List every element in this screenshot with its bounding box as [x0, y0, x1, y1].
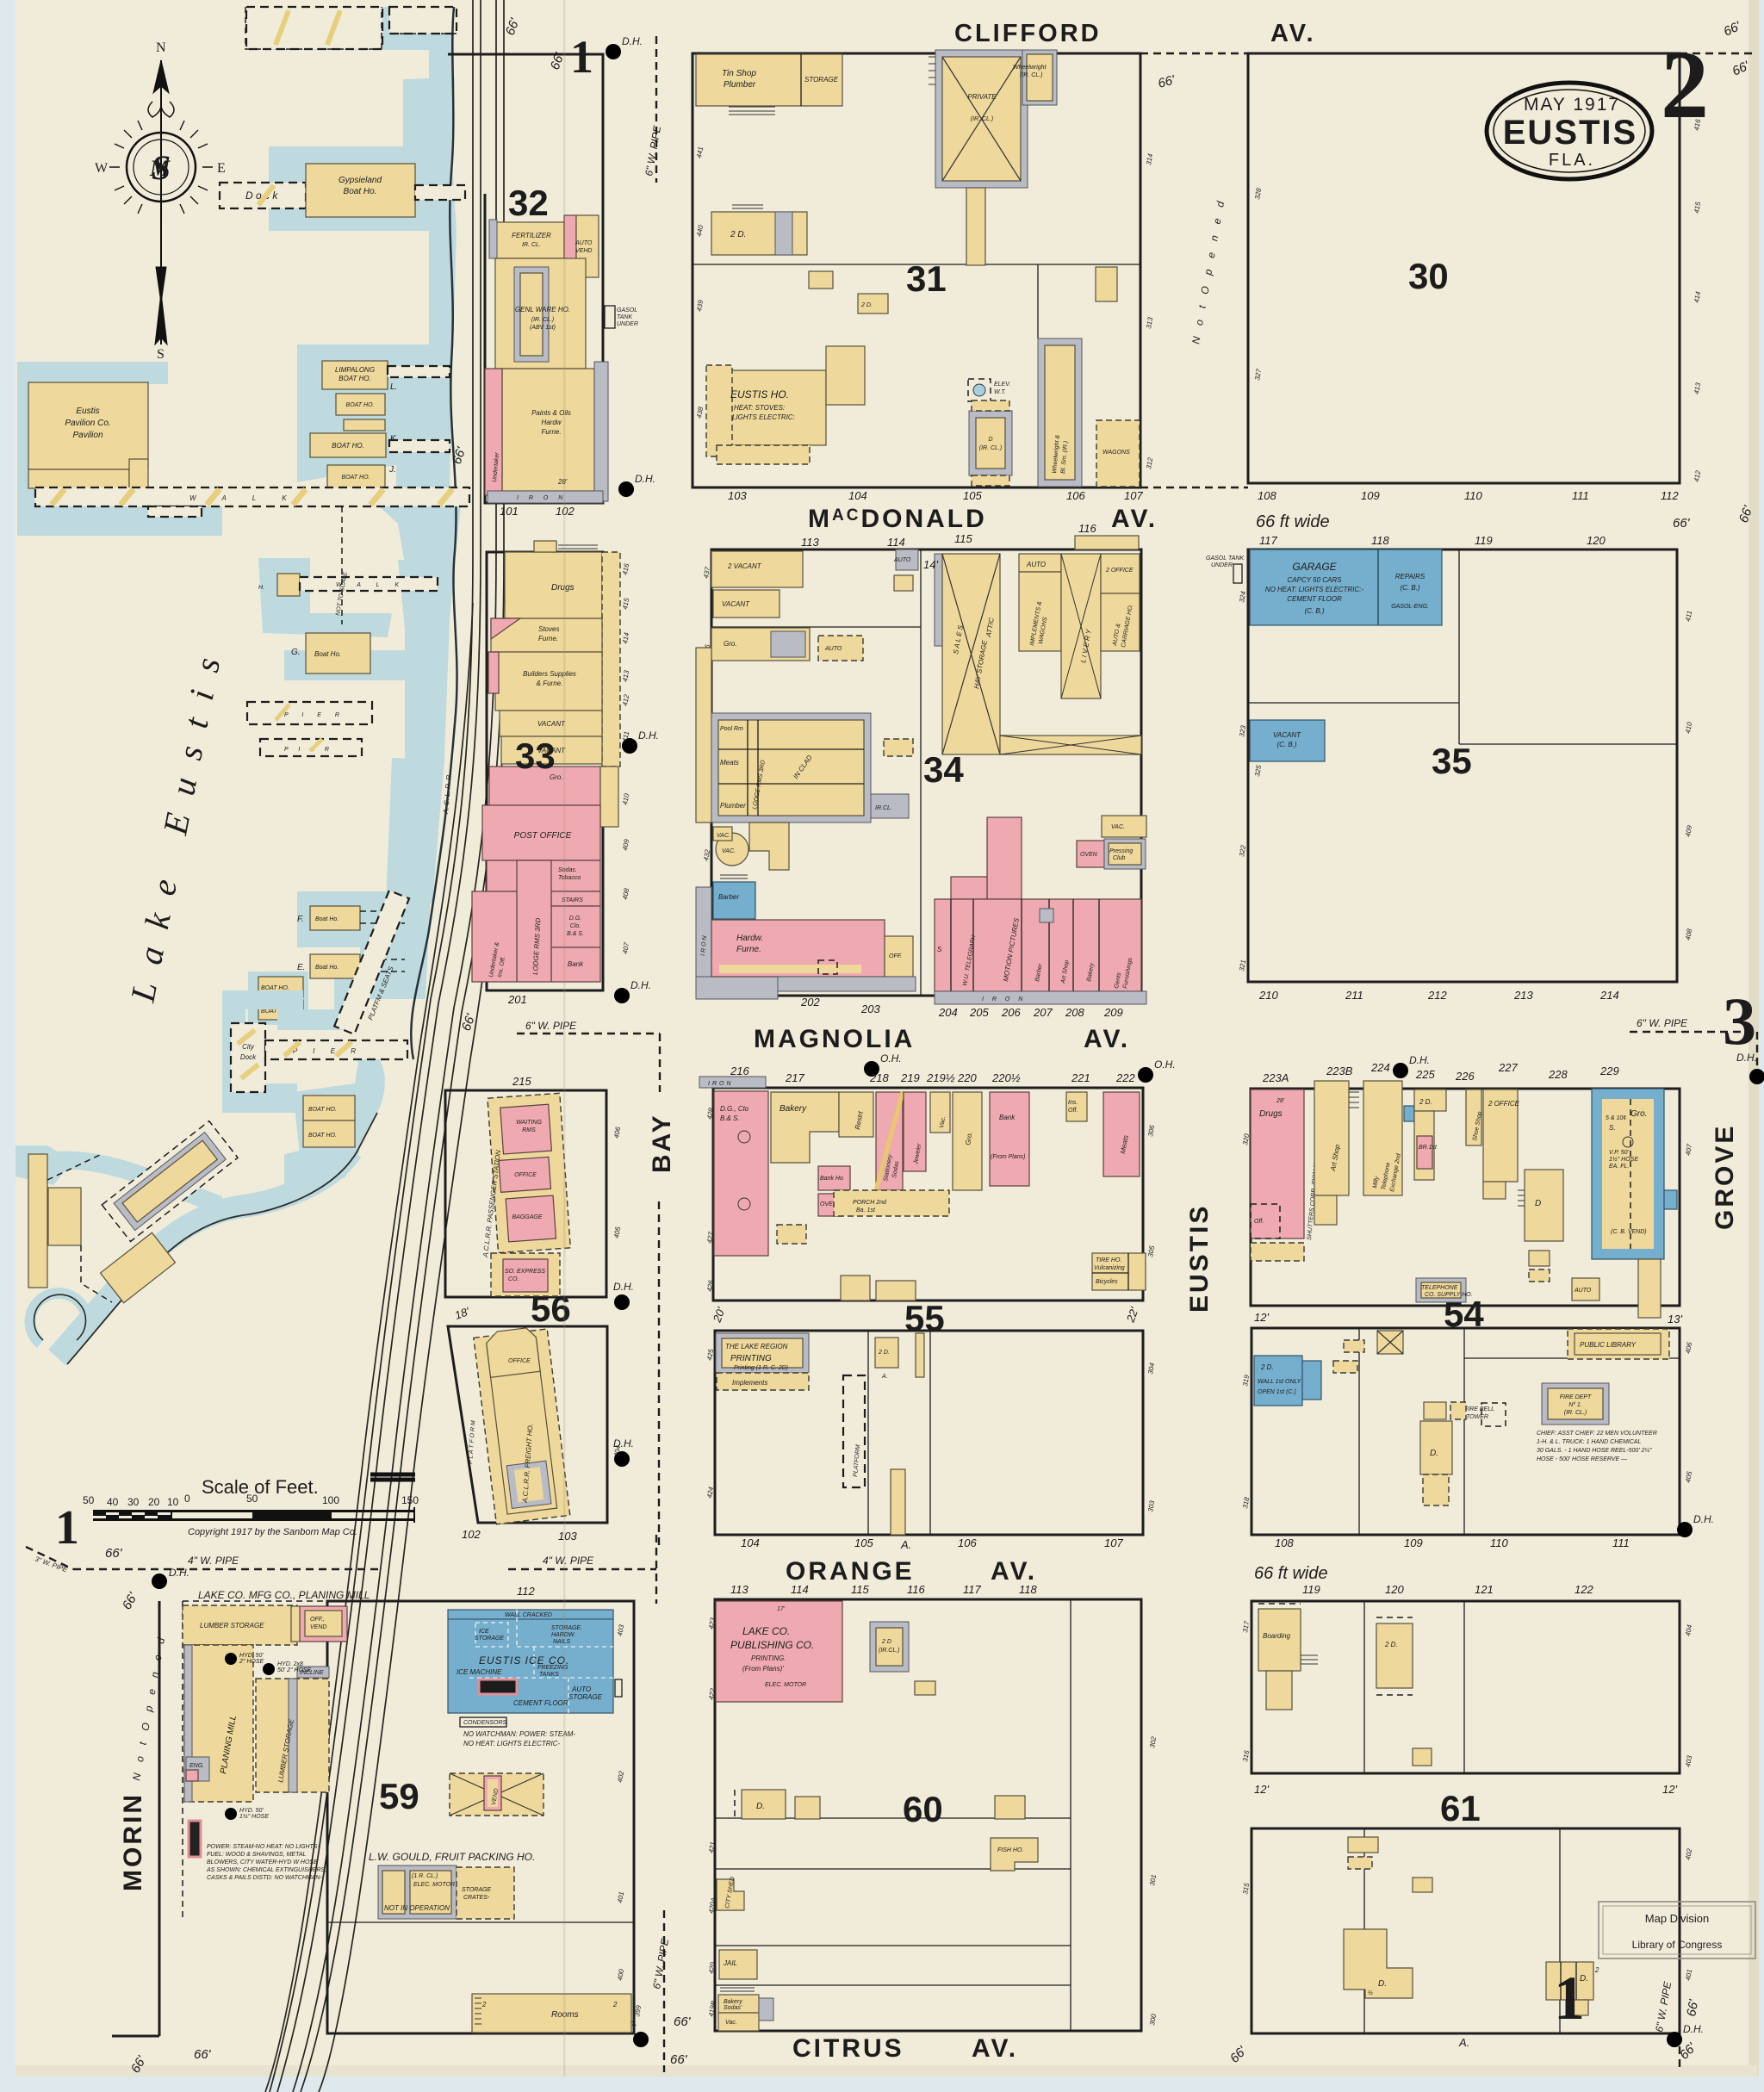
- svg-text:CLIFFORD: CLIFFORD: [954, 20, 1102, 47]
- svg-text:S: S: [157, 347, 165, 362]
- svg-text:AUTO: AUTO: [824, 646, 842, 652]
- svg-text:MAY 1917: MAY 1917: [1524, 95, 1620, 115]
- svg-text:Furne.: Furne.: [736, 945, 761, 954]
- svg-text:108: 108: [1258, 489, 1276, 502]
- svg-text:FIRE DEPT: FIRE DEPT: [1560, 1394, 1592, 1400]
- svg-text:BLOWERS, CITY WATER-HYD W HOSE: BLOWERS, CITY WATER-HYD W HOSE: [207, 1859, 318, 1865]
- svg-text:HYD. 50': HYD. 50': [239, 1653, 264, 1659]
- svg-text:Boat Ho.: Boat Ho.: [344, 187, 377, 196]
- svg-text:2 D.: 2 D.: [1260, 1363, 1274, 1371]
- svg-text:Ba. 1st: Ba. 1st: [856, 1207, 876, 1214]
- svg-text:WALL CRACKED: WALL CRACKED: [505, 1612, 552, 1618]
- svg-text:6" W. PIPE: 6" W. PIPE: [1637, 1017, 1688, 1029]
- svg-text:115: 115: [851, 1583, 869, 1596]
- svg-text:Off.: Off.: [1254, 1219, 1264, 1225]
- svg-text:112: 112: [1661, 489, 1679, 502]
- svg-text:B.& S.: B.& S.: [567, 931, 584, 937]
- svg-text:PORCH 2nd: PORCH 2nd: [853, 1200, 887, 1206]
- svg-text:PRINTING.: PRINTING.: [751, 1654, 786, 1662]
- svg-text:28': 28': [557, 478, 568, 486]
- svg-text:GENL WARE HO.: GENL WARE HO.: [515, 306, 570, 313]
- svg-text:CITRUS: CITRUS: [792, 2034, 904, 2063]
- svg-text:221: 221: [1071, 1071, 1090, 1084]
- svg-text:D.H.: D.H.: [613, 1281, 634, 1293]
- svg-text:VEND: VEND: [310, 1624, 326, 1630]
- svg-text:117: 117: [1259, 534, 1277, 547]
- svg-text:LAKE CO.: LAKE CO.: [742, 1625, 790, 1637]
- svg-text:229: 229: [1599, 1065, 1619, 1077]
- svg-text:150: 150: [401, 1494, 419, 1506]
- svg-text:VAC.: VAC.: [1111, 824, 1125, 830]
- svg-text:118: 118: [1371, 534, 1389, 547]
- svg-text:K.: K.: [390, 434, 398, 444]
- svg-text:226: 226: [1455, 1070, 1475, 1083]
- svg-text:Nº 1.: Nº 1.: [1568, 1402, 1581, 1408]
- svg-text:1½" HOSE: 1½" HOSE: [239, 1813, 269, 1820]
- svg-text:206: 206: [1001, 1006, 1021, 1019]
- svg-text:122: 122: [1575, 1583, 1593, 1596]
- svg-text:AUTO: AUTO: [1026, 561, 1046, 568]
- svg-text:106: 106: [958, 1536, 977, 1549]
- svg-text:PUBLISHING CO.: PUBLISHING CO.: [730, 1639, 814, 1651]
- svg-text:222: 222: [1115, 1071, 1135, 1084]
- svg-text:66': 66': [1673, 516, 1691, 531]
- svg-text:GASOL-ENG.: GASOL-ENG.: [1391, 604, 1429, 610]
- svg-text:Bakery: Bakery: [724, 1999, 742, 2005]
- svg-text:OFFICE: OFFICE: [508, 1358, 531, 1364]
- svg-text:AS SHOWN: CHEMICAL EXTINGUISHE: AS SHOWN: CHEMICAL EXTINGUISHERS,: [206, 1867, 326, 1873]
- svg-text:13': 13': [1668, 1313, 1682, 1325]
- svg-text:UNDER: UNDER: [1211, 562, 1233, 568]
- svg-text:D.H.: D.H.: [630, 979, 651, 991]
- svg-text:30: 30: [1408, 256, 1449, 296]
- svg-text:Boat Ho.: Boat Ho.: [315, 916, 339, 922]
- svg-text:209: 209: [1103, 1006, 1123, 1019]
- svg-text:ENG.: ENG.: [189, 1763, 204, 1769]
- svg-text:228: 228: [1548, 1068, 1568, 1081]
- svg-text:218: 218: [869, 1071, 889, 1084]
- svg-text:Stoves: Stoves: [538, 625, 559, 633]
- svg-text:EUSTIS: EUSTIS: [1503, 114, 1637, 152]
- svg-text:113: 113: [730, 1583, 748, 1596]
- svg-text:115: 115: [954, 532, 972, 545]
- svg-text:G.: G.: [291, 648, 301, 657]
- svg-text:STORAGE: STORAGE: [462, 1887, 491, 1893]
- svg-text:AV.: AV.: [1084, 1025, 1130, 1053]
- svg-text:Tobacco: Tobacco: [558, 875, 581, 881]
- svg-text:1½" HOSE: 1½" HOSE: [1609, 1156, 1638, 1163]
- svg-text:Club: Club: [1113, 855, 1126, 861]
- svg-text:Hardw.: Hardw.: [736, 934, 763, 943]
- svg-text:D.H.: D.H.: [622, 35, 643, 47]
- svg-text:LIGHTS ELECTRIC:: LIGHTS ELECTRIC:: [732, 413, 795, 421]
- svg-text:223B: 223B: [1326, 1065, 1353, 1077]
- svg-text:D: D: [1535, 1199, 1541, 1208]
- svg-text:O.H.: O.H.: [880, 1052, 902, 1065]
- svg-text:12': 12': [1254, 1311, 1269, 1324]
- svg-text:111: 111: [1612, 1536, 1630, 1549]
- svg-text:(From Plans): (From Plans): [991, 1154, 1025, 1160]
- svg-text:2 D.: 2 D.: [730, 230, 746, 239]
- svg-text:VAC.: VAC.: [722, 848, 736, 854]
- svg-text:50' 2" HOSE: 50' 2" HOSE: [277, 1667, 312, 1673]
- svg-text:204: 204: [938, 1006, 958, 1019]
- svg-text:214: 214: [1599, 989, 1619, 1002]
- svg-text:(C. B.): (C. B.): [1400, 584, 1419, 592]
- svg-text:AV.: AV.: [1270, 20, 1316, 47]
- svg-text:224: 224: [1370, 1061, 1390, 1074]
- svg-text:ELEC. MOTOR: ELEC. MOTOR: [765, 1682, 806, 1688]
- svg-text:Bank: Bank: [999, 1114, 1016, 1121]
- svg-text:116: 116: [907, 1583, 925, 1596]
- svg-text:66': 66': [194, 2047, 212, 2062]
- svg-text:Vac.: Vac.: [725, 2020, 737, 2026]
- svg-text:ELEV.: ELEV.: [994, 382, 1010, 388]
- svg-text:17': 17': [777, 1606, 786, 1612]
- svg-text:5 & 10¢: 5 & 10¢: [1606, 1115, 1626, 1121]
- svg-text:Hardw: Hardw: [541, 419, 562, 426]
- svg-text:50: 50: [83, 1494, 95, 1506]
- svg-text:VEHD: VEHD: [575, 248, 592, 254]
- svg-text:2 OFFICE: 2 OFFICE: [1105, 568, 1134, 574]
- svg-text:6" W. PIPE: 6" W. PIPE: [525, 1020, 577, 1032]
- svg-text:OVEN: OVEN: [1080, 852, 1098, 858]
- svg-text:Boarding: Boarding: [1263, 1632, 1291, 1640]
- svg-text:120: 120: [1385, 1583, 1404, 1596]
- svg-text:JAIL: JAIL: [723, 1959, 737, 1967]
- svg-text:LIMPALONG: LIMPALONG: [335, 366, 375, 374]
- svg-text:CONDENSORS: CONDENSORS: [463, 1720, 507, 1726]
- svg-text:UNDER: UNDER: [617, 321, 638, 327]
- svg-text:B.& S.: B.& S.: [720, 1114, 740, 1122]
- svg-text:W: W: [95, 161, 109, 176]
- svg-text:OFFICE: OFFICE: [514, 1172, 537, 1178]
- svg-text:2 D: 2 D: [881, 1639, 891, 1645]
- svg-text:34: 34: [923, 749, 964, 790]
- svg-text:109: 109: [1361, 489, 1380, 502]
- svg-text:RMS: RMS: [522, 1127, 536, 1133]
- svg-text:106: 106: [1066, 489, 1085, 502]
- svg-text:D: D: [988, 437, 992, 443]
- svg-text:216: 216: [730, 1065, 749, 1077]
- svg-text:Boat Ho.: Boat Ho.: [315, 965, 339, 971]
- svg-text:IRON: IRON: [708, 1081, 734, 1087]
- svg-text:2 OFFICE: 2 OFFICE: [1488, 1100, 1520, 1108]
- svg-text:OPEN 1st (C.): OPEN 1st (C.): [1258, 1389, 1296, 1395]
- svg-text:OFF.: OFF.: [889, 953, 902, 959]
- svg-text:Off.: Off.: [1068, 1108, 1078, 1114]
- svg-text:Scale of Feet.: Scale of Feet.: [202, 1476, 319, 1498]
- svg-text:BOAT HO.: BOAT HO.: [339, 375, 371, 382]
- svg-text:BOAT HO.: BOAT HO.: [308, 1133, 337, 1139]
- svg-text:P I E R: P I E R: [284, 712, 345, 718]
- svg-text:(C. B.): (C. B.): [1304, 607, 1324, 615]
- svg-text:W.T.: W.T.: [994, 389, 1006, 395]
- svg-text:111: 111: [1572, 489, 1589, 502]
- svg-text:NAILS: NAILS: [553, 1639, 571, 1645]
- svg-text:4" W. PIPE: 4" W. PIPE: [543, 1555, 594, 1567]
- svg-text:REPAIRS: REPAIRS: [1395, 573, 1425, 580]
- svg-text:½: ½: [1368, 1990, 1373, 1996]
- svg-text:Pavilion: Pavilion: [72, 431, 102, 440]
- svg-text:D.H.: D.H.: [635, 473, 655, 485]
- svg-text:210: 210: [1258, 989, 1278, 1002]
- svg-text:CRATES-: CRATES-: [463, 1895, 490, 1901]
- svg-text:STORAGE.: STORAGE.: [551, 1625, 582, 1631]
- svg-text:CEMENT FLOOR: CEMENT FLOOR: [513, 1699, 568, 1707]
- svg-text:220: 220: [957, 1071, 977, 1084]
- svg-text:101: 101: [500, 505, 519, 518]
- svg-text:(C. B.): (C. B.): [1276, 741, 1296, 748]
- svg-text:CEMENT FLOOR: CEMENT FLOOR: [1287, 595, 1342, 603]
- svg-text:Boat Ho.: Boat Ho.: [314, 650, 341, 658]
- svg-text:FUEL: WOOD & SHAVINGS, METAL: FUEL: WOOD & SHAVINGS, METAL: [207, 1852, 306, 1858]
- svg-text:12': 12': [1662, 1783, 1677, 1796]
- svg-text:110: 110: [1464, 489, 1482, 502]
- svg-text:Map Division: Map Division: [1645, 1912, 1709, 1925]
- svg-text:59: 59: [379, 1776, 419, 1816]
- svg-text:City: City: [242, 1043, 255, 1051]
- svg-text:MORIN: MORIN: [119, 1792, 147, 1891]
- svg-text:Pool Rm: Pool Rm: [720, 726, 743, 732]
- svg-text:2" HOSE: 2" HOSE: [239, 1659, 264, 1665]
- svg-text:Dock: Dock: [240, 1053, 257, 1061]
- svg-text:D.: D.: [1378, 1979, 1387, 1989]
- svg-text:220½: 220½: [991, 1071, 1021, 1084]
- svg-text:AV.: AV.: [991, 1557, 1037, 1586]
- svg-text:66': 66': [105, 1546, 123, 1561]
- svg-text:114: 114: [791, 1583, 809, 1596]
- svg-text:Sodas': Sodas': [724, 2005, 742, 2011]
- svg-text:109: 109: [1404, 1536, 1423, 1549]
- svg-text:219½: 219½: [926, 1071, 955, 1084]
- svg-text:55: 55: [904, 1298, 945, 1338]
- svg-text:D.H.: D.H.: [1683, 2023, 1704, 2035]
- svg-text:104: 104: [741, 1536, 760, 1549]
- svg-text:WAGONS: WAGONS: [1102, 450, 1130, 456]
- svg-text:119: 119: [1475, 534, 1493, 547]
- svg-text:219: 219: [900, 1071, 920, 1084]
- svg-text:217: 217: [785, 1071, 804, 1084]
- svg-text:Gro.: Gro.: [724, 640, 737, 648]
- svg-text:TIRE HO.: TIRE HO.: [1096, 1257, 1121, 1263]
- svg-text:Bank Ho: Bank Ho: [820, 1176, 843, 1182]
- svg-text:119: 119: [1302, 1583, 1320, 1596]
- svg-text:FLA.: FLA.: [1549, 151, 1595, 170]
- svg-text:2: 2: [1594, 1966, 1599, 1974]
- svg-text:212: 212: [1427, 989, 1447, 1002]
- svg-text:100: 100: [322, 1494, 339, 1506]
- svg-text:AV.: AV.: [1111, 505, 1158, 533]
- svg-text:4" W. PIPE: 4" W. PIPE: [188, 1555, 239, 1567]
- svg-text:W A L K: W A L K: [189, 494, 299, 502]
- svg-text:BOAT HO.: BOAT HO.: [261, 985, 289, 991]
- svg-text:OFF.,: OFF.,: [310, 1617, 325, 1623]
- svg-text:PUBLIC LIBRARY: PUBLIC LIBRARY: [1580, 1341, 1637, 1349]
- svg-text:TANKS: TANKS: [539, 1672, 559, 1678]
- svg-text:20: 20: [148, 1496, 160, 1508]
- svg-text:Gro.: Gro.: [1630, 1109, 1647, 1119]
- svg-text:GARAGE: GARAGE: [1292, 561, 1337, 573]
- svg-text:Barber: Barber: [718, 893, 739, 901]
- svg-text:POST OFFICE: POST OFFICE: [514, 831, 572, 841]
- svg-text:66': 66': [670, 2052, 688, 2067]
- svg-text:TELEPHONE: TELEPHONE: [1421, 1285, 1458, 1291]
- svg-text:BR.1st: BR.1st: [1419, 1145, 1438, 1151]
- svg-text:(IR. CL.): (IR. CL.): [1564, 1410, 1587, 1416]
- svg-text:201: 201: [507, 993, 527, 1006]
- svg-text:Clo.: Clo.: [570, 923, 581, 929]
- svg-text:Drugs: Drugs: [1259, 1109, 1283, 1119]
- svg-text:GASOL: GASOL: [617, 307, 637, 313]
- svg-text:CO.: CO.: [508, 1276, 519, 1282]
- svg-text:GASOL TANK: GASOL TANK: [1206, 556, 1244, 562]
- svg-text:D.: D.: [1430, 1449, 1438, 1458]
- svg-text:N: N: [156, 40, 166, 55]
- svg-text:STORAGE: STORAGE: [475, 1636, 504, 1642]
- svg-text:P I E R: P I E R: [293, 1047, 363, 1055]
- svg-text:H.: H.: [258, 585, 264, 591]
- svg-text:Plumber: Plumber: [720, 802, 746, 810]
- svg-text:2 VACANT: 2 VACANT: [727, 562, 762, 570]
- svg-text:2 D.: 2 D.: [1419, 1098, 1432, 1106]
- svg-text:BOAT HO.: BOAT HO.: [346, 402, 375, 408]
- svg-text:HEAT: STOVES:: HEAT: STOVES:: [734, 404, 785, 412]
- svg-text:(From Plans)': (From Plans)': [742, 1665, 784, 1673]
- svg-text:32: 32: [508, 183, 549, 223]
- svg-text:BAY: BAY: [648, 1113, 676, 1173]
- svg-text:D.G.: D.G.: [569, 916, 581, 922]
- svg-text:223A: 223A: [1262, 1071, 1289, 1084]
- svg-text:66 ft wide: 66 ft wide: [1256, 512, 1330, 531]
- svg-text:33: 33: [515, 736, 556, 776]
- svg-text:IR.CL.: IR.CL.: [875, 805, 892, 811]
- svg-text:FIRE BELL: FIRE BELL: [1464, 1406, 1494, 1412]
- svg-text:LAKE CO. MFG CO., PLANING MILL: LAKE CO. MFG CO., PLANING MILL: [198, 1589, 370, 1601]
- svg-text:NO WATCHMAN: POWER: STEAM-: NO WATCHMAN: POWER: STEAM-: [463, 1730, 575, 1738]
- svg-text:Bicycles: Bicycles: [1096, 1279, 1118, 1285]
- svg-text:60: 60: [903, 1789, 943, 1829]
- svg-text:103: 103: [728, 489, 747, 502]
- svg-text:104: 104: [848, 489, 867, 502]
- svg-text:A.: A.: [881, 1374, 888, 1380]
- svg-text:117: 117: [963, 1583, 981, 1596]
- svg-text:61: 61: [1440, 1788, 1481, 1828]
- svg-text:SO. EXPRESS: SO. EXPRESS: [505, 1269, 545, 1275]
- svg-text:114: 114: [887, 536, 905, 549]
- svg-text:FISH HO.: FISH HO.: [997, 1847, 1023, 1853]
- svg-text:Sodas.: Sodas.: [558, 867, 577, 873]
- svg-text:(IR. CL.): (IR. CL.): [1020, 72, 1042, 78]
- svg-text:66': 66': [674, 2014, 692, 2029]
- svg-text:Library of Congress: Library of Congress: [1632, 1939, 1723, 1951]
- svg-text:THE LAKE REGION: THE LAKE REGION: [725, 1343, 788, 1350]
- svg-text:STORAGE: STORAGE: [804, 76, 839, 84]
- svg-text:108: 108: [1275, 1536, 1294, 1549]
- svg-text:Printing (1 R. C. 2D): Printing (1 R. C. 2D): [734, 1365, 788, 1371]
- svg-text:D.: D.: [756, 1802, 765, 1811]
- svg-text:215: 215: [512, 1075, 531, 1088]
- svg-text:211: 211: [1345, 989, 1363, 1002]
- svg-text:ELEC. MOTOR: ELEC. MOTOR: [413, 1882, 455, 1888]
- svg-text:Vulcanizing: Vulcanizing: [1094, 1265, 1125, 1271]
- svg-text:105: 105: [963, 489, 982, 502]
- svg-text:MAGNOLIA: MAGNOLIA: [754, 1025, 915, 1053]
- svg-text:IR. CL.: IR. CL.: [522, 242, 541, 248]
- svg-text:207: 207: [1033, 1006, 1053, 1019]
- svg-text:D.H.: D.H.: [638, 729, 659, 742]
- svg-text:Bank: Bank: [568, 960, 584, 968]
- svg-text:(IR. CL.): (IR. CL.): [979, 445, 1002, 451]
- svg-text:D.H.: D.H.: [1409, 1054, 1430, 1066]
- svg-text:113: 113: [801, 536, 819, 549]
- svg-text:Bakery: Bakery: [780, 1104, 807, 1114]
- svg-text:A.: A.: [1458, 2036, 1469, 2049]
- svg-text:Wheelwright: Wheelwright: [1013, 65, 1047, 71]
- svg-text:NO HEAT: LIGHTS ELECTRIC:-: NO HEAT: LIGHTS ELECTRIC:-: [1265, 586, 1364, 593]
- svg-text:118: 118: [1019, 1583, 1037, 1596]
- svg-text:2 D.: 2 D.: [860, 302, 873, 308]
- svg-text:TOWER: TOWER: [1466, 1414, 1488, 1420]
- svg-text:31: 31: [906, 258, 947, 299]
- svg-text:112: 112: [517, 1585, 535, 1598]
- svg-text:AUTO: AUTO: [1574, 1288, 1592, 1294]
- svg-text:HYD. 50': HYD. 50': [239, 1808, 264, 1814]
- svg-text:WALL 1st ONLY: WALL 1st ONLY: [1258, 1379, 1302, 1385]
- svg-text:FERTILIZER: FERTILIZER: [512, 232, 551, 239]
- svg-text:(IR. CL.): (IR. CL.): [971, 116, 993, 122]
- svg-text:2: 2: [612, 2001, 618, 2008]
- svg-text:NO HEAT: LIGHTS ELECTRIC-: NO HEAT: LIGHTS ELECTRIC-: [463, 1740, 560, 1747]
- svg-text:AUTO: AUTO: [571, 1685, 591, 1693]
- svg-text:121: 121: [1475, 1583, 1494, 1596]
- svg-text:S.: S.: [1609, 1124, 1616, 1132]
- svg-text:VAC.: VAC.: [717, 833, 730, 839]
- svg-text:BOAT HO.: BOAT HO.: [308, 1107, 337, 1113]
- svg-text:Gypsieland: Gypsieland: [339, 176, 382, 185]
- svg-text:BAGGAGE: BAGGAGE: [512, 1214, 542, 1220]
- svg-text:(IR. CL.): (IR. CL.): [531, 317, 554, 323]
- svg-text:Pressing: Pressing: [1109, 848, 1133, 854]
- svg-text:Drugs: Drugs: [551, 583, 575, 593]
- svg-text:EA. FL.: EA. FL.: [1609, 1164, 1629, 1170]
- svg-text:1-H. & L. TRUCK: 1 HAND CHEMIC: 1-H. & L. TRUCK: 1 HAND CHEMICAL: [1537, 1439, 1641, 1445]
- svg-text:EUSTIS HO.: EUSTIS HO.: [730, 388, 789, 400]
- svg-text:I R O N: I R O N: [982, 996, 1026, 1003]
- svg-text:66 ft wide: 66 ft wide: [1254, 1564, 1328, 1583]
- svg-text:202: 202: [800, 996, 820, 1009]
- svg-text:(1 R. CL.): (1 R. CL.): [412, 1873, 438, 1879]
- svg-text:TANK: TANK: [617, 314, 632, 320]
- svg-text:EUSTIS: EUSTIS: [1185, 1204, 1214, 1313]
- svg-text:O.H.: O.H.: [1154, 1058, 1176, 1071]
- svg-text:ICE MACHINE: ICE MACHINE: [457, 1668, 502, 1676]
- svg-text:(IR.CL.): (IR.CL.): [879, 1648, 900, 1654]
- svg-text:A.: A.: [900, 1538, 911, 1551]
- svg-text:F.: F.: [297, 915, 304, 924]
- svg-text:HYD. 2x8: HYD. 2x8: [277, 1661, 303, 1667]
- svg-text:2: 2: [1661, 32, 1709, 139]
- svg-text:Pavilion Co.: Pavilion Co.: [65, 419, 110, 428]
- svg-text:Meats: Meats: [720, 759, 739, 767]
- svg-text:PRIVATE: PRIVATE: [967, 93, 997, 101]
- svg-text:STORAGE: STORAGE: [568, 1693, 603, 1701]
- svg-text:AUTO: AUTO: [893, 557, 911, 563]
- svg-text:107: 107: [1104, 1536, 1123, 1549]
- svg-text:V.P. 50': V.P. 50': [1609, 1150, 1630, 1156]
- svg-text:CHIEF: ASST CHIEF: 22 MEN VOLU: CHIEF: ASST CHIEF: 22 MEN VOLUNTEER: [1537, 1431, 1657, 1437]
- svg-text:110: 110: [1490, 1536, 1508, 1549]
